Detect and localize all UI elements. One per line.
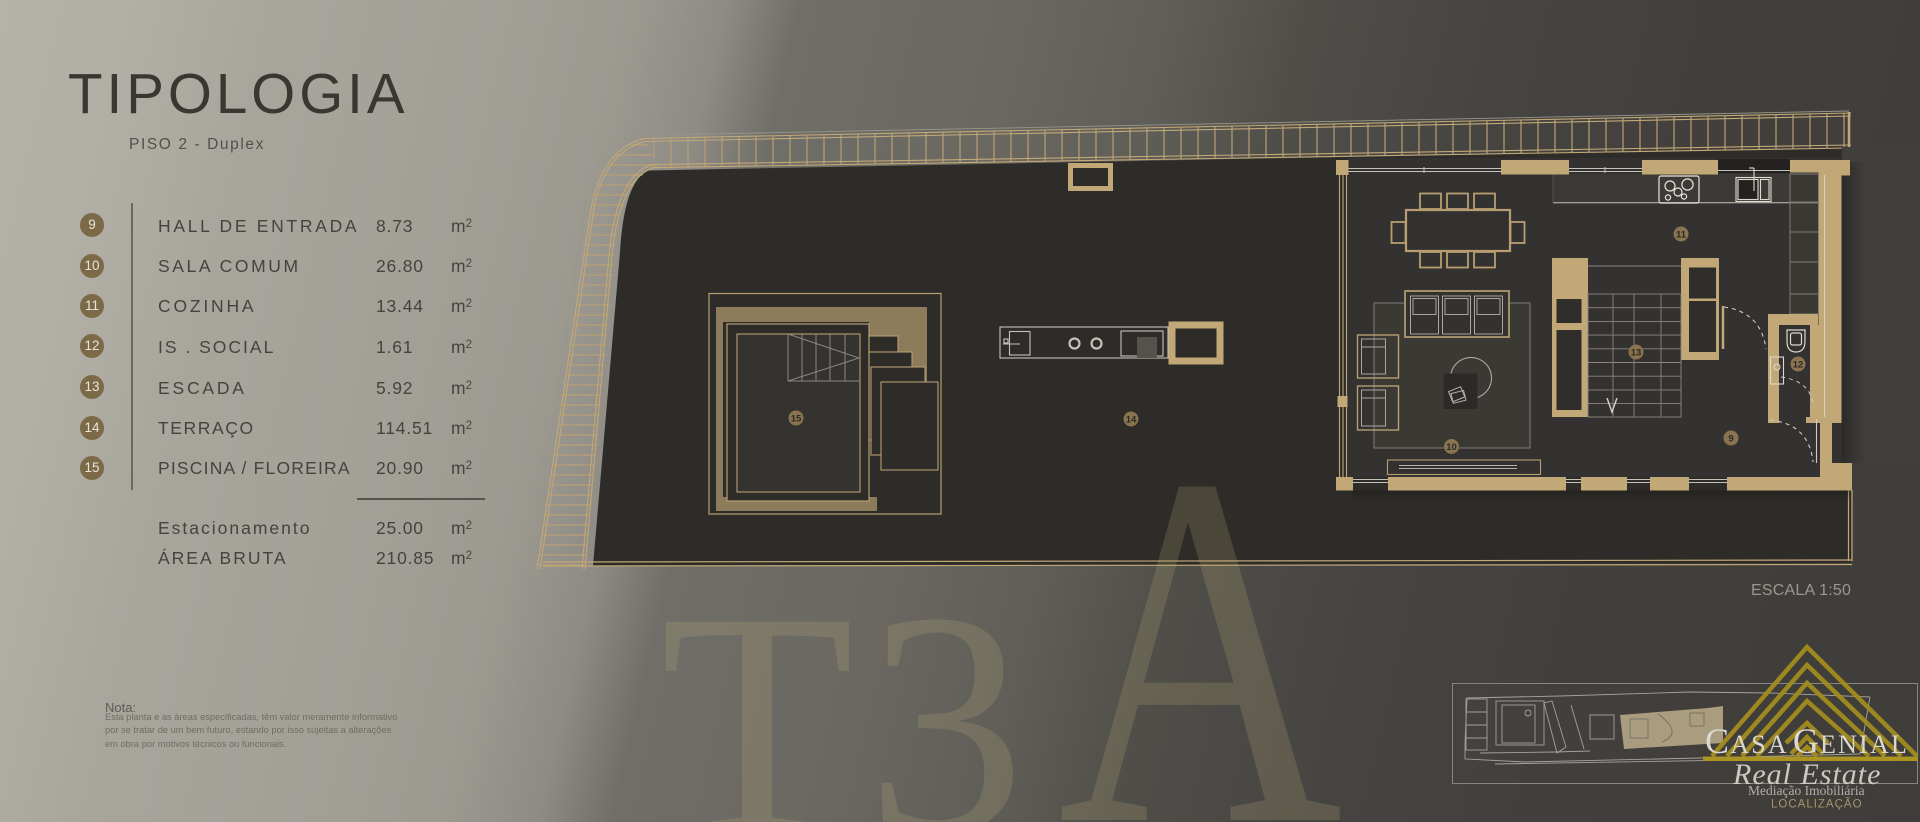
svg-text:15: 15 — [791, 413, 802, 424]
svg-text:9: 9 — [1728, 433, 1733, 444]
svg-text:Mediação Imobiliária: Mediação Imobiliária — [1748, 783, 1865, 798]
svg-text:T3: T3 — [660, 547, 1037, 822]
svg-text:13: 13 — [1631, 347, 1642, 358]
svg-text:11: 11 — [1676, 229, 1687, 240]
svg-text:A: A — [1058, 369, 1342, 822]
svg-text:12: 12 — [1793, 359, 1804, 370]
svg-text:LOCALIZAÇÃO: LOCALIZAÇÃO — [1771, 798, 1863, 811]
svg-text:10: 10 — [1446, 442, 1457, 453]
